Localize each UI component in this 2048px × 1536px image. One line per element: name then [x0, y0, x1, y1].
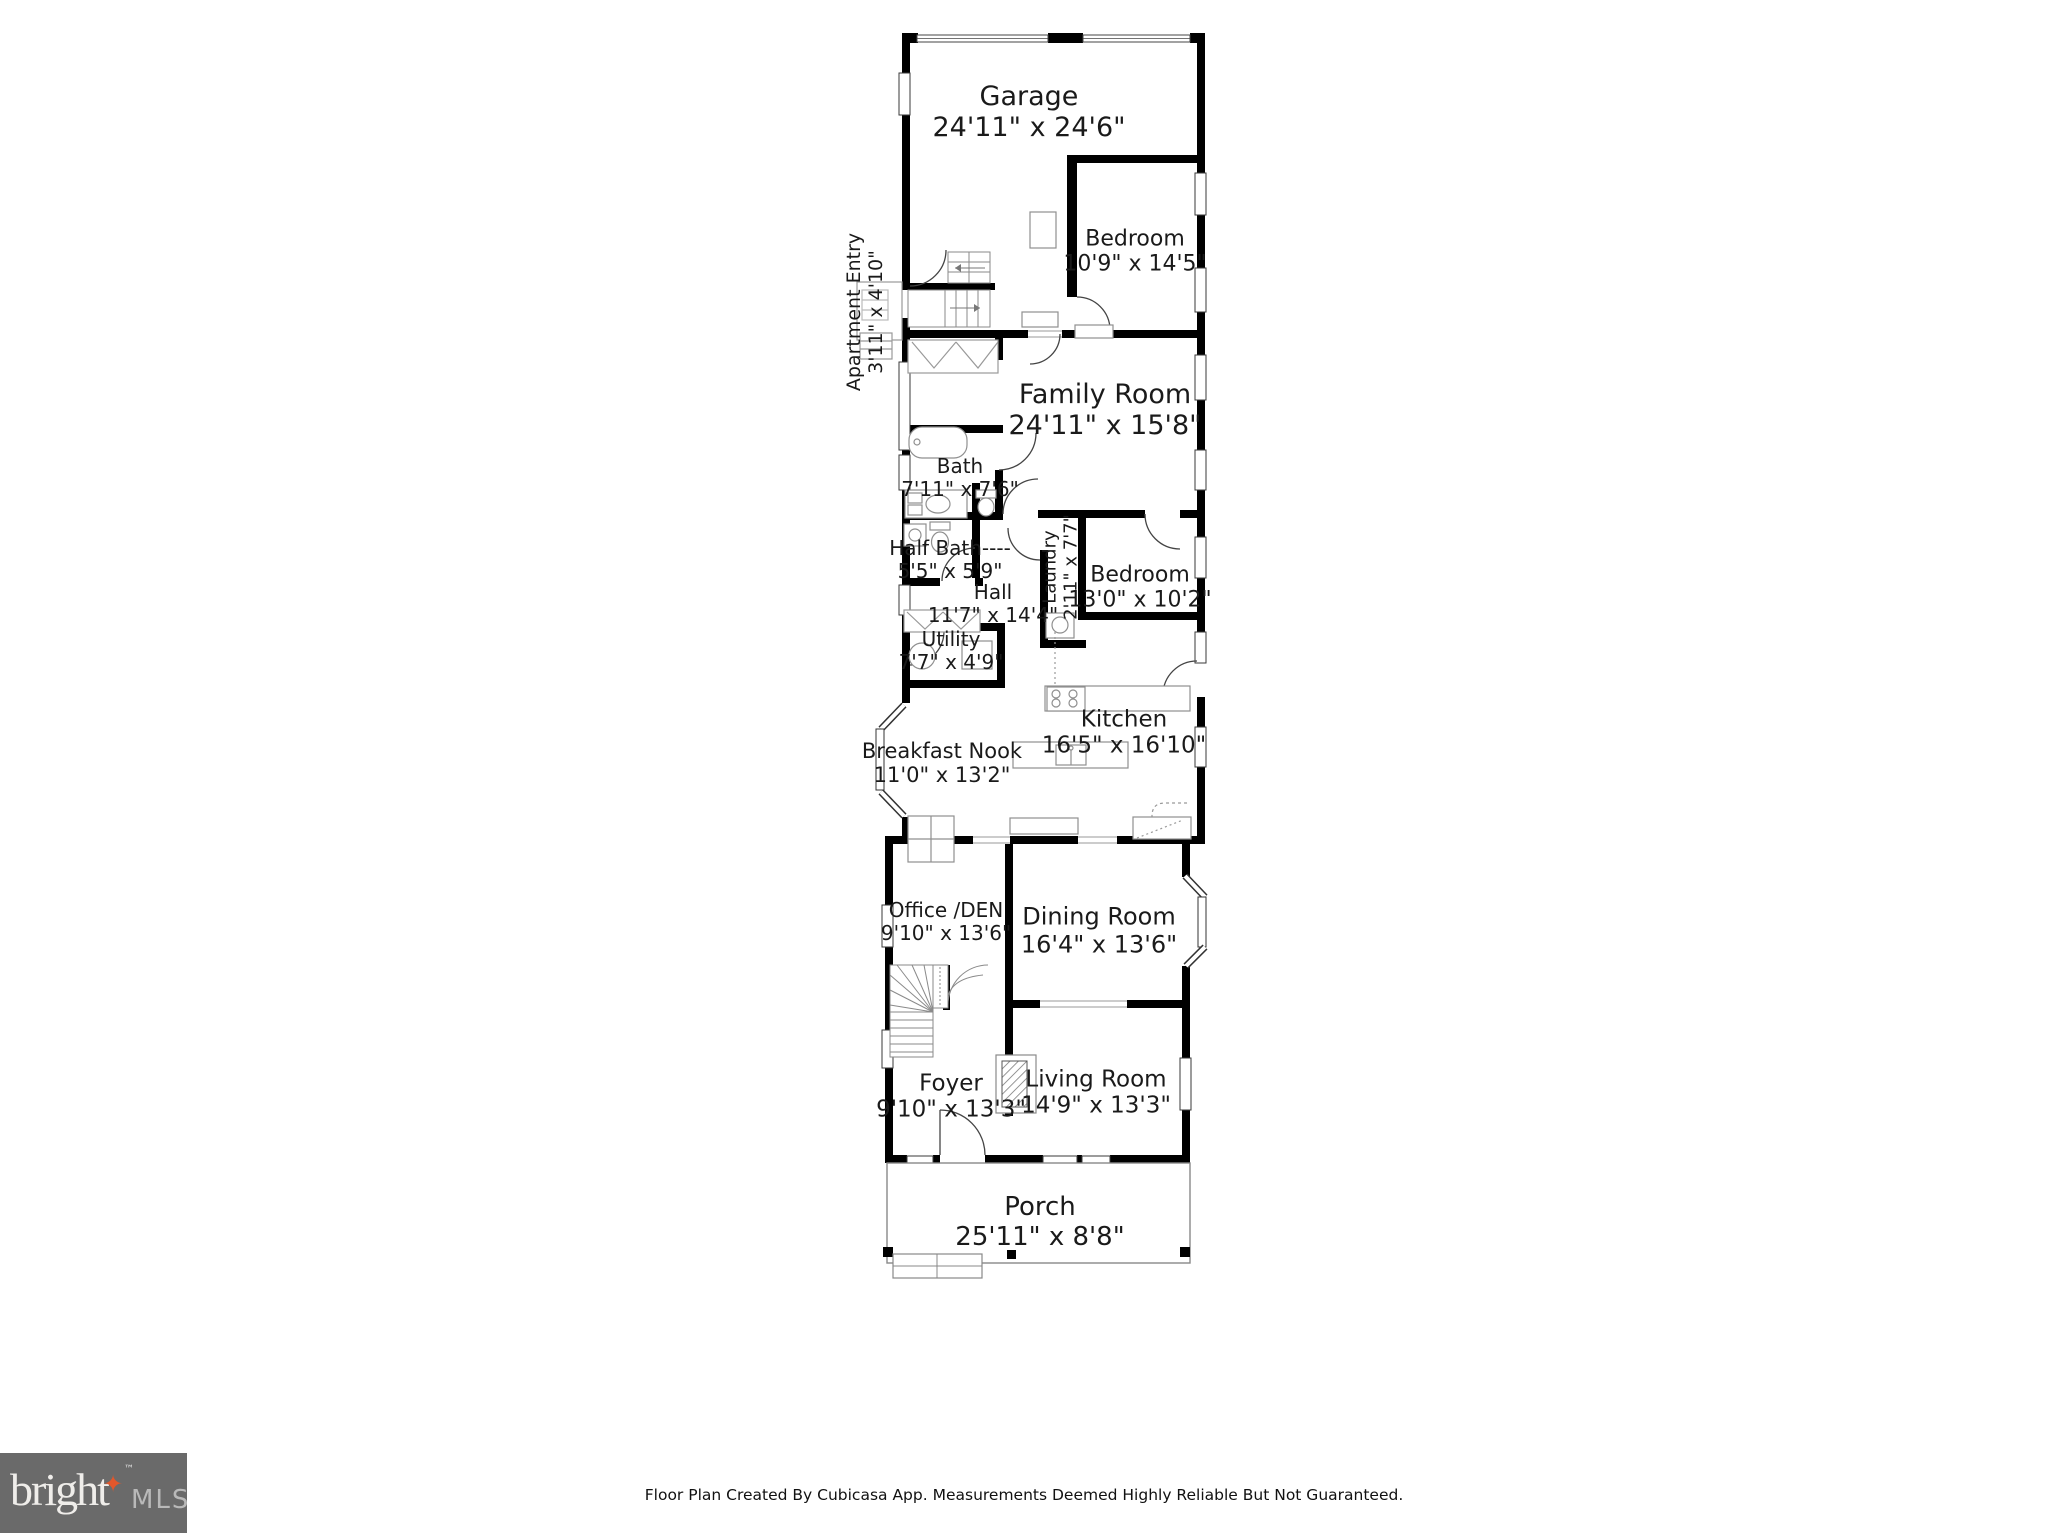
- garage-stairs: [908, 252, 990, 327]
- room-name: Dining Room: [1021, 903, 1177, 931]
- room-dims: 7'11" x 7'6": [901, 478, 1019, 501]
- trademark-symbol: ™: [124, 1465, 134, 1475]
- room-label-half-bath: Half Bath---- 5'5" x 5'9": [889, 537, 1011, 583]
- room-dims: 9'10" x 13'6": [881, 922, 1011, 945]
- room-label-breakfast-nook: Breakfast Nook 11'0" x 13'2": [862, 739, 1022, 787]
- room-dims: 10'9" x 14'5": [1063, 252, 1206, 277]
- disclaimer-text: Floor Plan Created By Cubicasa App. Meas…: [645, 1486, 1404, 1504]
- room-label-garage: Garage 24'11" x 24'6": [932, 81, 1125, 143]
- room-name: Kitchen: [1042, 707, 1206, 733]
- room-dims: 3'11" x 4'10": [866, 233, 888, 391]
- room-name: Bath: [901, 455, 1019, 478]
- room-dims: 11'0" x 13'2": [862, 763, 1022, 787]
- floorplan-drawing: [0, 0, 2048, 1536]
- logo-mls-text: MLS: [131, 1487, 190, 1513]
- room-name: Breakfast Nook: [862, 739, 1022, 763]
- room-dims: 13'0" x 10'2": [1068, 588, 1211, 613]
- bright-mls-logo: bright ✦ ™ MLS: [0, 1453, 187, 1533]
- room-name: Living Room: [1021, 1067, 1171, 1093]
- room-dims: 14'9" x 13'3": [1021, 1093, 1171, 1119]
- room-label-apartment-entry: Apartment Entry 3'11" x 4'10": [844, 233, 888, 391]
- room-label-office-den: Office /DEN 9'10" x 13'6": [881, 899, 1011, 945]
- room-name: Family Room: [1008, 379, 1201, 410]
- room-label-kitchen: Kitchen 16'5" x 16'10": [1042, 707, 1206, 760]
- room-name: Bedroom: [1068, 563, 1211, 588]
- room-name: Bedroom: [1063, 227, 1206, 252]
- water-heater-icon: [1030, 212, 1056, 248]
- room-dims: 11'7" x 14'4": [928, 604, 1058, 627]
- room-label-bedroom2: Bedroom 13'0" x 10'2": [1068, 563, 1211, 614]
- room-dims: 16'5" x 16'10": [1042, 733, 1206, 759]
- room-name: Laundry: [1040, 514, 1061, 620]
- room-name: Porch: [955, 1193, 1124, 1223]
- room-label-bath: Bath 7'11" x 7'6": [901, 455, 1019, 501]
- room-label-bedroom1: Bedroom 10'9" x 14'5": [1063, 227, 1206, 278]
- room-label-utility: Utility 7'7" x 4'9": [899, 628, 1004, 674]
- room-label-living-room: Living Room 14'9" x 13'3": [1021, 1067, 1171, 1120]
- room-dims: 16'4" x 13'6": [1021, 931, 1177, 959]
- room-name: Garage: [932, 81, 1125, 112]
- room-label-porch: Porch 25'11" x 8'8": [955, 1193, 1124, 1253]
- foyer-stairs: [890, 965, 988, 1057]
- room-name: Half Bath----: [889, 537, 1011, 560]
- room-name: Apartment Entry: [844, 233, 866, 391]
- room-dims: 7'7" x 4'9": [899, 651, 1004, 674]
- room-dims: 9'10" x 13'3": [876, 1097, 1026, 1123]
- room-label-dining-room: Dining Room 16'4" x 13'6": [1021, 903, 1177, 958]
- room-name: Utility: [899, 628, 1004, 651]
- room-name: Office /DEN: [881, 899, 1011, 922]
- room-label-family-room: Family Room 24'11" x 15'8": [1008, 379, 1201, 441]
- floorplan-page: Garage 24'11" x 24'6" Bedroom 10'9" x 14…: [0, 0, 2048, 1536]
- logo-brand-text: bright: [10, 1467, 108, 1513]
- room-name: Foyer: [876, 1071, 1026, 1097]
- room-dims: 24'11" x 15'8": [1008, 410, 1201, 441]
- room-dims: 24'11" x 24'6": [932, 112, 1125, 143]
- star-icon: ✦: [103, 1472, 123, 1496]
- room-dims: 25'11" x 8'8": [955, 1223, 1124, 1253]
- room-label-foyer: Foyer 9'10" x 13'3": [876, 1071, 1026, 1124]
